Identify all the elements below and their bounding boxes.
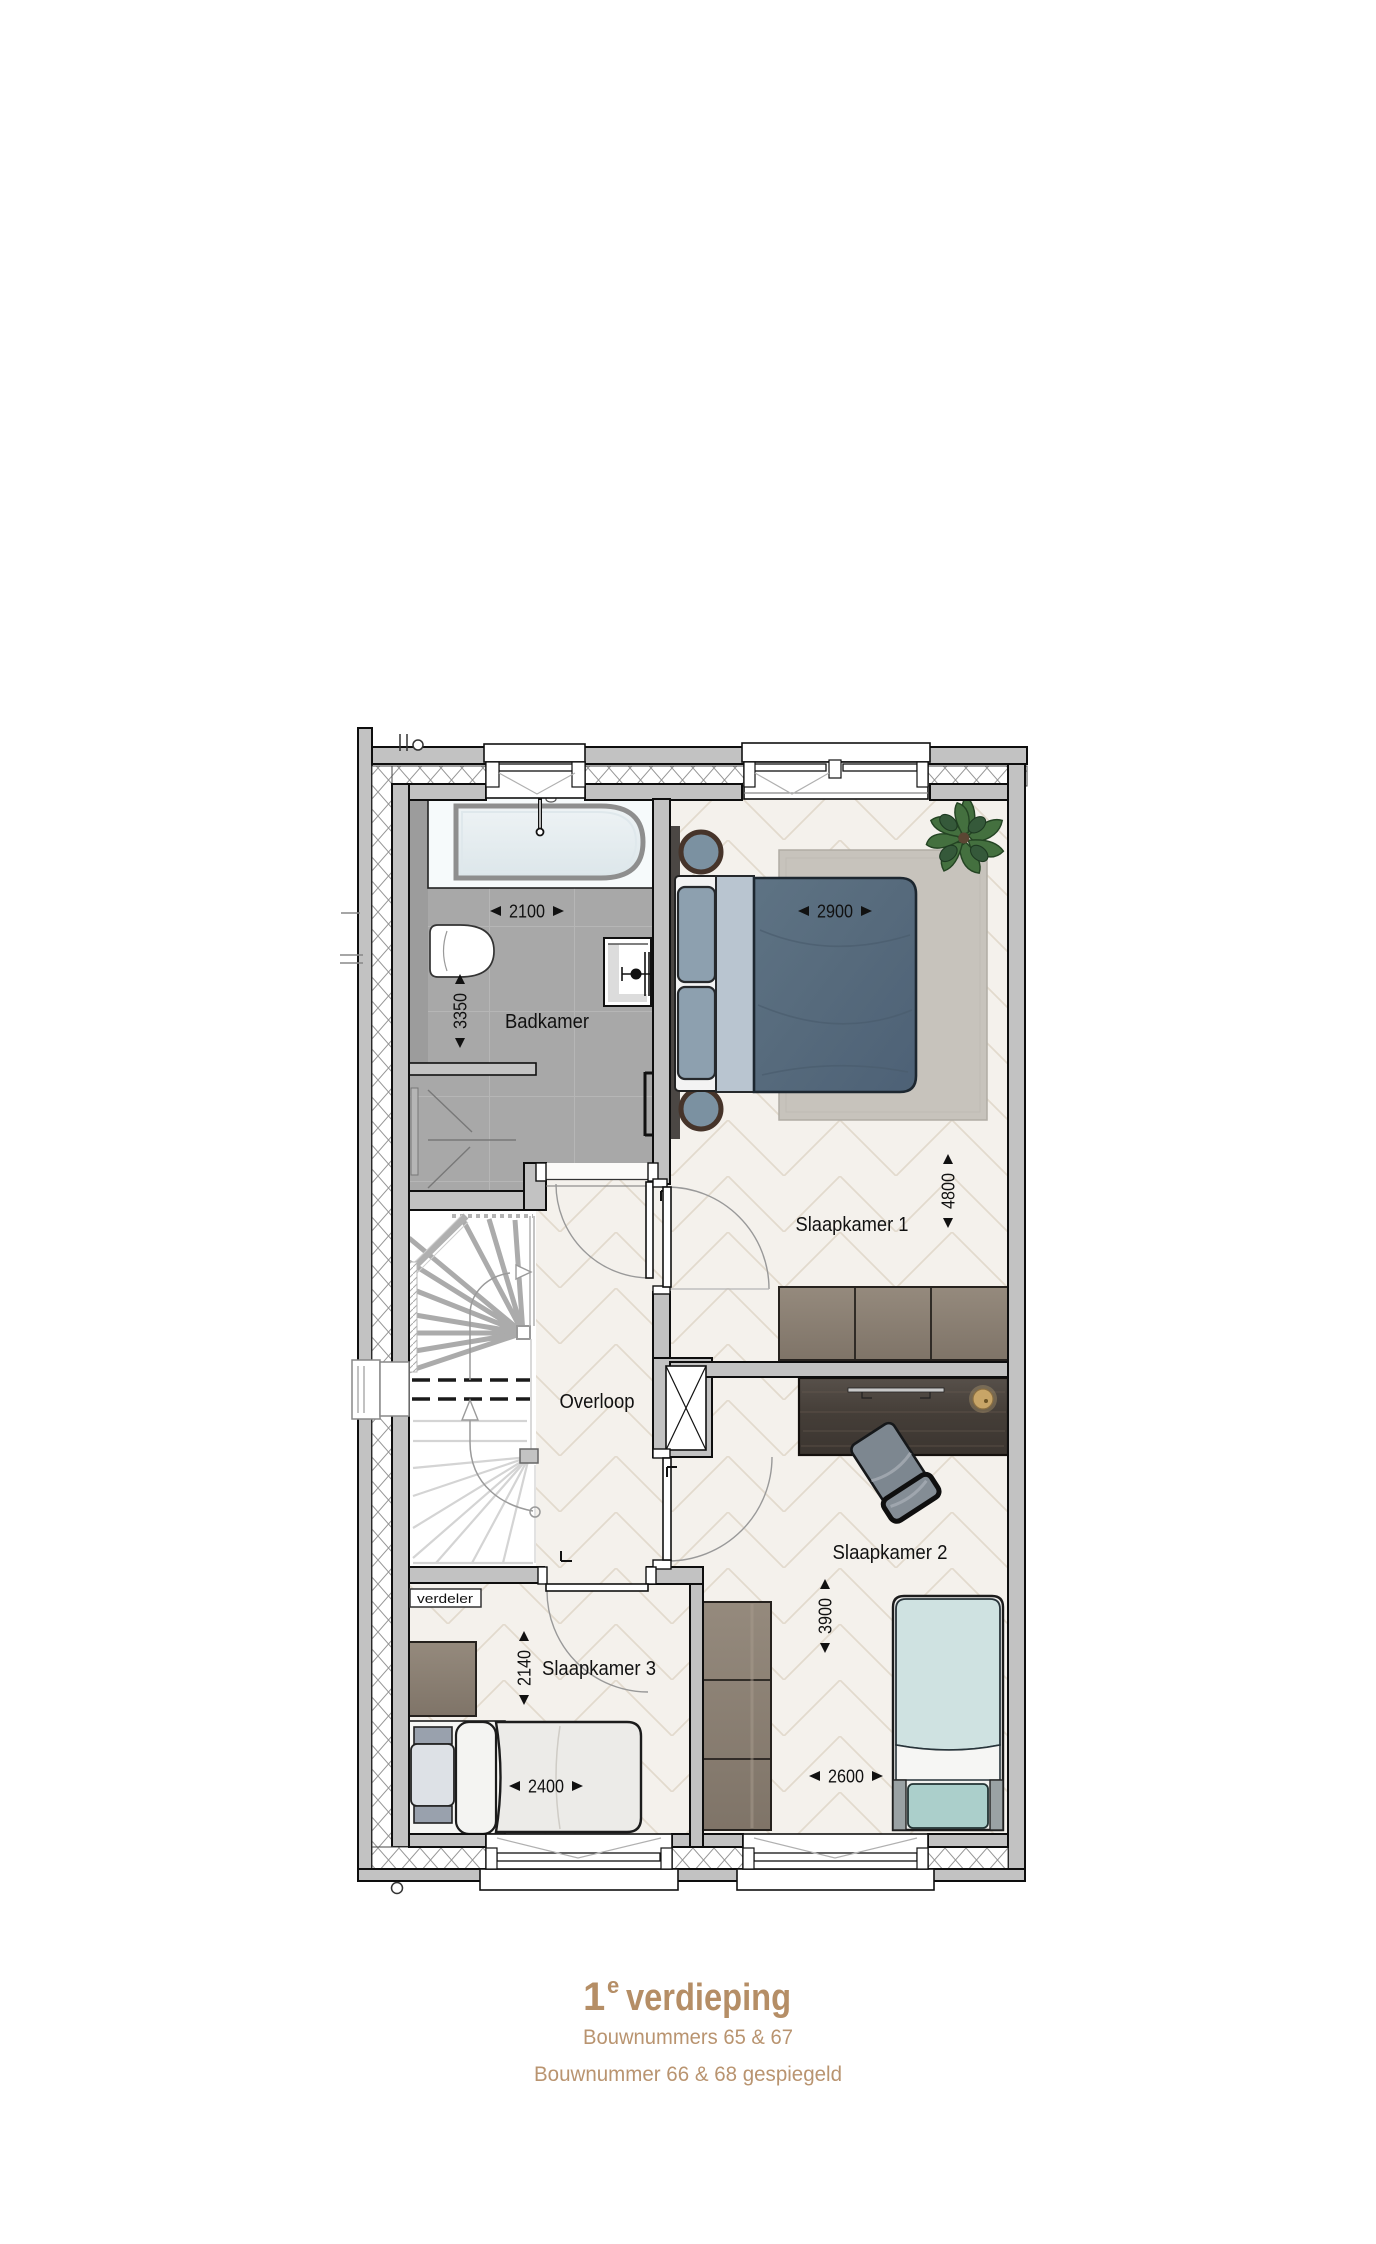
svg-text:2140: 2140 [514,1650,535,1686]
svg-text:Slaapkamer 3: Slaapkamer 3 [542,1658,656,1680]
svg-text:Overloop: Overloop [560,1391,635,1413]
svg-text:3350: 3350 [450,993,471,1029]
svg-text:Badkamer: Badkamer [505,1011,589,1033]
svg-text:verdieping: verdieping [626,1977,791,2019]
svg-text:Slaapkamer 2: Slaapkamer 2 [833,1542,948,1564]
svg-text:e: e [607,1973,619,1998]
svg-text:verdeler: verdeler [417,1591,474,1606]
svg-text:4800: 4800 [938,1173,959,1209]
svg-text:2600: 2600 [828,1766,864,1787]
svg-text:2900: 2900 [817,901,853,922]
svg-text:1: 1 [583,1975,605,2019]
svg-text:3900: 3900 [815,1598,836,1634]
svg-text:2100: 2100 [509,901,545,922]
svg-text:Bouwnummers 65 & 67: Bouwnummers 65 & 67 [583,2025,793,2049]
svg-text:Bouwnummer 66 & 68 gespiegeld: Bouwnummer 66 & 68 gespiegeld [534,2062,842,2086]
svg-text:2400: 2400 [528,1776,564,1797]
svg-text:Slaapkamer 1: Slaapkamer 1 [796,1214,909,1236]
